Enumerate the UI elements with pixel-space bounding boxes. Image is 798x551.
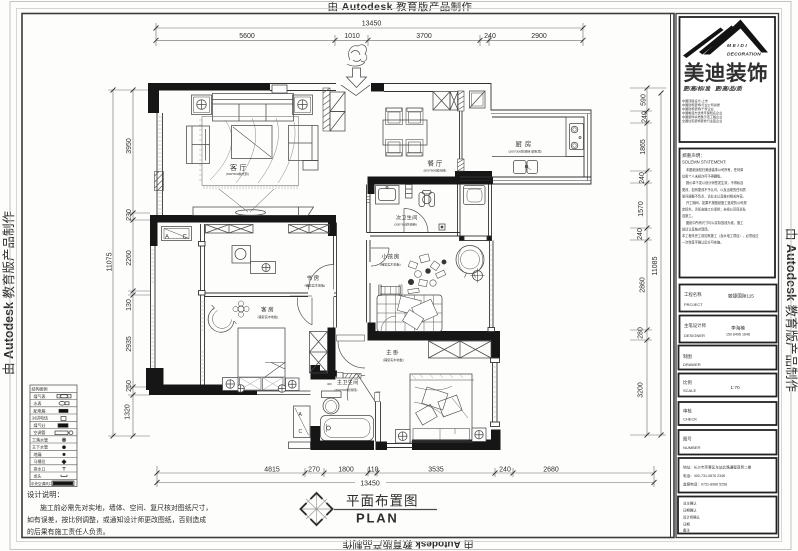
svg-text:(300*300防滑砖): (300*300防滑砖) <box>335 387 358 392</box>
svg-text:比例: 比例 <box>683 379 692 386</box>
svg-text:的后果有施工责任人负责。: 的后果有施工责任人负责。 <box>27 527 110 536</box>
svg-text:11085: 11085 <box>652 256 659 275</box>
svg-text:备注: 备注 <box>683 528 690 533</box>
svg-text:更/高/标/准 更/高/品/质: 更/高/标/准 更/高/品/质 <box>683 86 743 93</box>
svg-text:审核: 审核 <box>683 408 692 415</box>
svg-text:结构图例: 结构图例 <box>32 385 48 391</box>
svg-text:郑重声明：: 郑重声明： <box>682 152 705 159</box>
svg-text:150 8496 1648: 150 8496 1648 <box>726 333 750 337</box>
svg-text:(铺复实木地板): (铺复实木地板) <box>383 357 404 362</box>
svg-text:5600: 5600 <box>239 33 255 40</box>
svg-text:客厅: 客厅 <box>230 163 249 172</box>
svg-text:主卧: 主卧 <box>386 349 400 357</box>
svg-text:配电箱: 配电箱 <box>34 407 46 413</box>
svg-text:590: 590 <box>640 94 647 106</box>
svg-text:2260: 2260 <box>126 250 133 266</box>
svg-text:全国住宅装饰装修行业蓝企业: 全国住宅装饰装修行业蓝企业 <box>682 118 722 123</box>
svg-text:水表: 水表 <box>34 400 42 406</box>
svg-text:开工期间，如果不按图纸施工造成的公司规: 开工期间，如果不按图纸施工造成的公司规 <box>686 200 747 205</box>
svg-text:(铺复实木地板): (铺复实木地板) <box>380 262 401 267</box>
svg-text:平面布置图: 平面布置图 <box>346 494 419 509</box>
svg-text:13450: 13450 <box>360 481 380 488</box>
svg-text:280: 280 <box>637 327 644 339</box>
svg-text:230: 230 <box>126 209 133 221</box>
svg-text:1320: 1320 <box>124 404 131 420</box>
svg-text:CHECK: CHECK <box>683 417 697 422</box>
svg-text:定损失，责任由施工方承担；未经公司同意私: 定损失，责任由施工方承担；未经公司同意私 <box>682 207 747 212</box>
svg-text:1865: 1865 <box>640 139 647 155</box>
svg-text:(铺复实木地板): (铺复实木地板) <box>305 283 326 288</box>
svg-text:业主确认: 业主确认 <box>683 501 697 506</box>
svg-text:中央空调风口: 中央空调风口 <box>31 481 53 486</box>
svg-text:餐厅: 餐厅 <box>428 159 445 168</box>
svg-text:C: C <box>299 429 303 435</box>
svg-text:主卫生间: 主卫生间 <box>337 379 359 386</box>
svg-text:270: 270 <box>308 467 320 474</box>
svg-text:厨房: 厨房 <box>516 139 535 148</box>
svg-text:2935: 2935 <box>126 336 133 352</box>
svg-text:NUMBER: NUMBER <box>683 445 700 450</box>
svg-text:1010: 1010 <box>344 33 360 40</box>
svg-text:240: 240 <box>499 467 511 474</box>
svg-text:(铺复实木地板): (铺复实木地板) <box>258 314 279 319</box>
svg-text:MEIDI: MEIDI <box>727 43 748 49</box>
svg-text:排水口: 排水口 <box>34 465 46 471</box>
svg-text:地址：长沙市芙蓉区车站北路通程商贸二楼: 地址：长沙市芙蓉区车站北路通程商贸二楼 <box>683 465 752 470</box>
svg-text:DECORATION: DECORATION <box>727 52 761 58</box>
svg-text:煤气表: 煤气表 <box>34 393 46 399</box>
svg-text:2680: 2680 <box>543 467 559 474</box>
svg-text:C: C <box>183 235 188 241</box>
svg-text:美迪装饰: 美迪装饰 <box>684 61 768 85</box>
svg-text:250: 250 <box>126 380 133 392</box>
svg-text:设计说明：: 设计说明： <box>27 490 64 499</box>
svg-text:书房: 书房 <box>307 274 321 282</box>
svg-text:(300*300防滑砖): (300*300防滑砖) <box>394 222 417 227</box>
svg-text:自施工。: 自施工。 <box>682 213 695 218</box>
svg-text:工程名称: 工程名称 <box>684 291 702 298</box>
svg-text:4815: 4815 <box>264 467 280 474</box>
svg-text:3700: 3700 <box>416 33 432 40</box>
svg-text:PLAN: PLAN <box>356 511 399 526</box>
svg-text:施工前必需先对实地，墙体、空间、复尺核对图纸尺寸，: 施工前必需先对实地，墙体、空间、复尺核对图纸尺寸， <box>40 503 212 512</box>
svg-text:监督电话：0731-8966 5258: 监督电话：0731-8966 5258 <box>683 482 727 487</box>
svg-text:龙头: 龙头 <box>34 473 42 479</box>
svg-text:煤气灶: 煤气灶 <box>34 422 46 428</box>
svg-text:更改，如有更改不予认可，以及出现的任何质: 更改，如有更改不予认可，以及出现的任何质 <box>682 187 747 192</box>
svg-text:3950: 3950 <box>126 138 133 154</box>
svg-text:敏捷国际115: 敏捷国际115 <box>728 293 754 300</box>
svg-text:400: 400 <box>327 382 332 386</box>
svg-text:11075: 11075 <box>106 252 113 271</box>
svg-text:报价单下发以设计师签发生效，不得私自: 报价单下发以设计师签发生效，不得私自 <box>686 180 743 185</box>
svg-text:一次性签字确认后方可实施。: 一次性签字确认后方可实施。 <box>682 240 723 245</box>
svg-text:A: A <box>165 235 169 241</box>
svg-text:如有误差，按比例调整，或通知设计师更改图纸，否则造成: 如有误差，按比例调整，或通知设计师更改图纸，否则造成 <box>27 515 206 524</box>
svg-text:小孩房: 小孩房 <box>382 253 400 261</box>
svg-text:240: 240 <box>639 172 646 184</box>
svg-text:1800: 1800 <box>338 467 354 474</box>
svg-text:110: 110 <box>367 467 378 474</box>
svg-text:日期确认: 日期确认 <box>683 508 697 513</box>
svg-text:空调管: 空调管 <box>34 429 46 435</box>
svg-text:主下水管: 主下水管 <box>32 444 48 450</box>
svg-text:电话：400-731-0876 2346: 电话：400-731-0876 2346 <box>683 473 725 478</box>
svg-text:(300*300防滑砖 贴到顶): (300*300防滑砖 贴到顶) <box>509 149 542 154</box>
svg-text:设计师确认: 设计师确认 <box>683 515 701 520</box>
svg-text:客房: 客房 <box>261 306 275 314</box>
svg-text:次卫生间: 次卫生间 <box>396 215 418 222</box>
svg-text:3200: 3200 <box>637 382 644 398</box>
svg-text:本图纸版权归美迪装饰公司所有，任何单: 本图纸版权归美迪装饰公司所有，任何单 <box>686 167 744 172</box>
svg-text:2900: 2900 <box>531 33 547 40</box>
svg-text:240: 240 <box>637 228 644 240</box>
svg-text:(800*800抛光砖): (800*800抛光砖) <box>424 168 447 173</box>
svg-text:DESIGNER: DESIGNER <box>684 333 705 338</box>
svg-text:DRAWER: DRAWER <box>683 362 701 367</box>
svg-text:对讲电话: 对讲电话 <box>32 415 48 421</box>
svg-text:位和个人未经许可不得翻版。: 位和个人未经许可不得翻版。 <box>682 174 723 179</box>
svg-text:3535: 3535 <box>428 467 444 474</box>
svg-text:PROJECT: PROJECT <box>684 302 703 307</box>
svg-text:前请认真核对现场。: 前请认真核对现场。 <box>682 226 711 231</box>
svg-text:李海楠: 李海楠 <box>731 325 745 332</box>
svg-text:量问题概不负责，请业主认真核对相关内容。: 量问题概不负责，请业主认真核对相关内容。 <box>682 193 746 198</box>
svg-text:主笔设计师: 主笔设计师 <box>684 322 707 329</box>
svg-text:SOLEMN STATEMENT:: SOLEMN STATEMENT: <box>682 160 726 165</box>
svg-text:2860: 2860 <box>639 277 646 293</box>
svg-text:日期: 日期 <box>683 522 690 527</box>
svg-text:图纸中所有尺寸均以实际放线为准，施工: 图纸中所有尺寸均以实际放线为准，施工 <box>686 220 744 225</box>
svg-text:本工程未完工前如有施工（含水电工项目），必须经过: 本工程未完工前如有施工（含水电工项目），必须经过 <box>682 233 759 238</box>
svg-text:130: 130 <box>126 299 133 311</box>
svg-text:240: 240 <box>641 111 648 123</box>
svg-text:SCALE: SCALE <box>683 388 696 393</box>
svg-text:由 Autodesk 教育版产品制作: 由 Autodesk 教育版产品制作 <box>1 211 16 375</box>
svg-text:1:70: 1:70 <box>730 385 740 391</box>
svg-text:制图: 制图 <box>683 353 692 360</box>
svg-text:13450: 13450 <box>362 21 382 28</box>
svg-text:工落水管: 工落水管 <box>32 436 48 442</box>
svg-text:240: 240 <box>484 33 496 40</box>
svg-text:地漏: 地漏 <box>34 451 42 457</box>
svg-text:(800*800抛光砖): (800*800抛光砖) <box>226 171 249 176</box>
svg-text:马桶位: 马桶位 <box>34 458 46 464</box>
svg-text:1570: 1570 <box>638 201 645 217</box>
